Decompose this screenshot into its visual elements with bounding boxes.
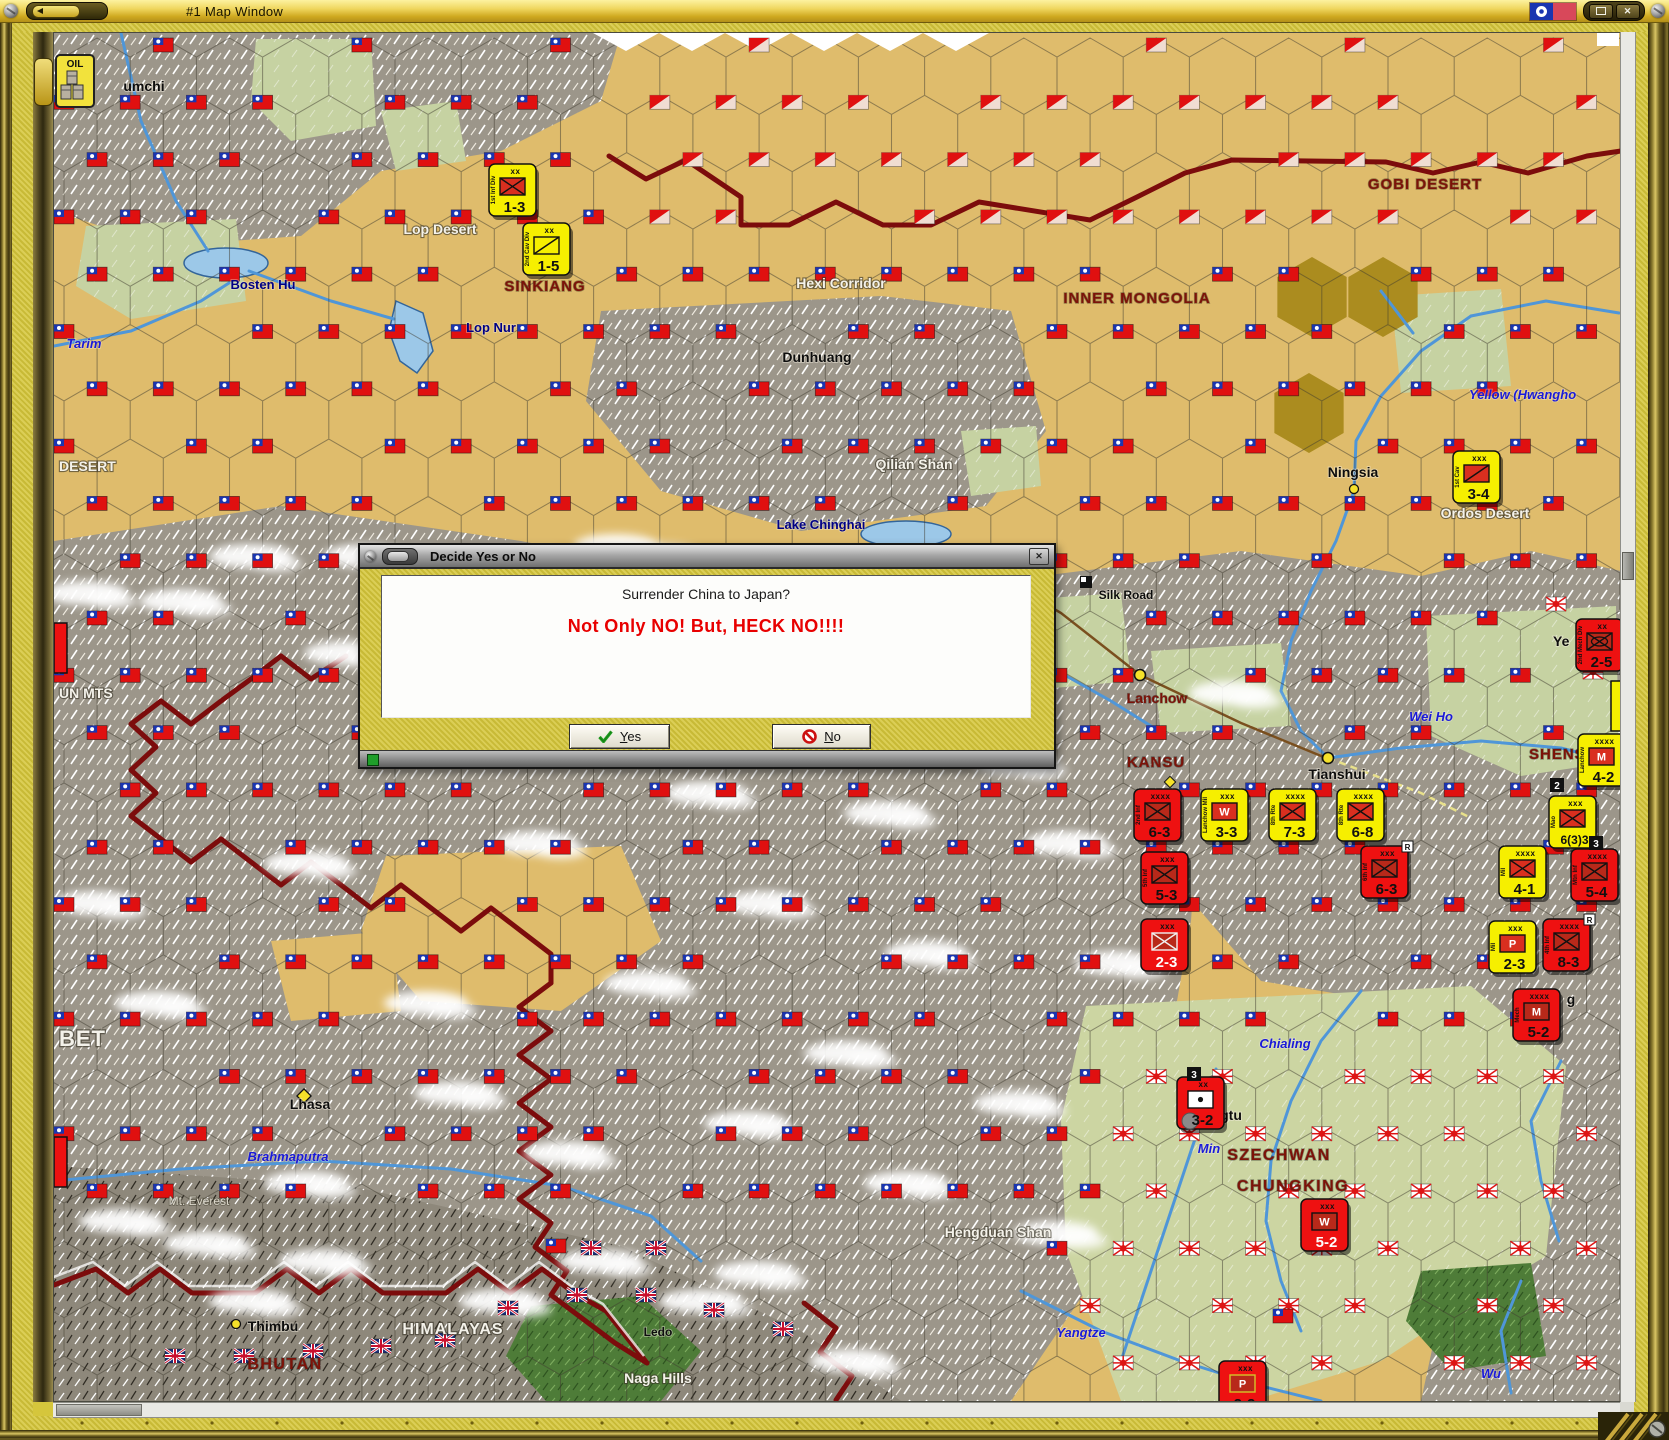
map-label: Lake Chinghai — [777, 517, 866, 532]
flag-roc-icon — [584, 783, 604, 797]
flag-roc-icon — [848, 1127, 868, 1141]
flag-roc-icon — [915, 325, 935, 339]
svg-text:2-3: 2-3 — [1504, 956, 1526, 973]
window-frame-left — [0, 22, 12, 1440]
unit-counter[interactable]: xxxxM4-2Lanchow — [1578, 734, 1621, 790]
flag-roc-icon — [882, 1184, 902, 1198]
flag-sun-icon — [1378, 1127, 1398, 1141]
flag-roc-icon — [220, 726, 240, 740]
map-label: SZECHWAN — [1227, 1147, 1331, 1164]
flag-roc-icon — [286, 611, 306, 625]
flag-roc-icon — [882, 1069, 902, 1083]
unit-counter[interactable]: xx1-31st Inf Div — [489, 164, 539, 220]
map-label: Ordos Desert — [1441, 505, 1530, 521]
svg-text:xxxx: xxxx — [1595, 737, 1615, 746]
unit-counter[interactable]: xxxx4-1Mil — [1499, 846, 1549, 902]
flag-roc-icon — [749, 840, 769, 854]
china-flag-icon — [1529, 2, 1577, 21]
flag-roc-icon — [716, 1012, 736, 1026]
flag-diag-icon — [948, 153, 968, 167]
flag-roc-icon — [915, 439, 935, 453]
flag-roc-icon — [584, 210, 604, 224]
svg-text:2nd Cav Div: 2nd Cav Div — [525, 231, 531, 266]
flag-roc-icon — [253, 95, 273, 109]
flag-roc-icon — [1510, 325, 1530, 339]
flag-roc-icon — [87, 382, 107, 396]
svg-text:8th Rte: 8th Rte — [1271, 804, 1277, 825]
svg-text:xxx: xxx — [1320, 1202, 1335, 1211]
flag-roc-icon — [186, 783, 206, 797]
flag-roc-icon — [1179, 1012, 1199, 1026]
flag-roc-icon — [153, 267, 173, 281]
flag-roc-icon — [385, 783, 405, 797]
svg-text:xxx: xxx — [1508, 924, 1523, 933]
map-label: Yangtze — [1056, 1325, 1105, 1340]
map-label: Lop Desert — [403, 221, 476, 237]
svg-text:xx: xx — [511, 167, 521, 176]
flag-roc-icon — [584, 898, 604, 912]
flag-roc-icon — [1113, 325, 1133, 339]
svg-text:Mil: Mil — [1501, 868, 1507, 877]
flag-roc-icon — [1047, 1127, 1067, 1141]
decision-dialog: Decide Yes or No ✕ Surrender China to Ja… — [358, 543, 1056, 769]
flag-roc-icon — [1345, 611, 1365, 625]
flag-roc-icon — [1213, 726, 1233, 740]
map-label: SHENS — [1529, 746, 1586, 763]
flag-roc-icon — [286, 955, 306, 969]
map-label: Thimbu — [248, 1318, 299, 1334]
map-label: SINKIANG — [504, 278, 585, 295]
flag-roc-icon — [451, 439, 471, 453]
flag-roc-icon — [1378, 668, 1398, 682]
flag-roc-icon — [1179, 554, 1199, 568]
flag-roc-icon — [186, 210, 206, 224]
flag-sun-icon — [1213, 1299, 1233, 1313]
flag-roc-icon — [87, 611, 107, 625]
flag-roc-icon — [551, 1184, 571, 1198]
unit-counter[interactable]: xxxx5-4Mtn Inf — [1571, 849, 1621, 905]
flag-roc-icon — [584, 1012, 604, 1026]
svg-text:xxx: xxx — [1160, 855, 1175, 864]
flag-roc-icon — [1246, 1012, 1266, 1026]
flag-sun-icon — [1411, 1069, 1431, 1083]
svg-text:R: R — [1587, 916, 1593, 925]
map-label: HIMALAYAS — [402, 1321, 503, 1338]
flag-roc-icon — [87, 726, 107, 740]
flag-roc-icon — [220, 955, 240, 969]
svg-text:M: M — [1597, 752, 1606, 764]
unit-counter[interactable]: xxxx6-32nd Inf — [1134, 789, 1184, 845]
dialog-titlebar[interactable]: Decide Yes or No ✕ — [360, 545, 1054, 569]
flag-roc-icon — [54, 898, 74, 912]
flag-roc-icon — [650, 325, 670, 339]
svg-text:xxx: xxx — [1472, 454, 1487, 463]
flag-roc-icon — [1146, 611, 1166, 625]
dialog-title: Decide Yes or No — [430, 549, 536, 564]
flag-roc-icon — [253, 783, 273, 797]
flag-diag-icon — [1544, 38, 1564, 52]
flag-roc-icon — [551, 496, 571, 510]
flag-roc-icon — [517, 1012, 537, 1026]
flag-roc-icon — [1477, 267, 1497, 281]
flag-roc-icon — [1444, 668, 1464, 682]
flag-diag-icon — [716, 210, 736, 224]
flag-diag-icon — [1279, 153, 1299, 167]
flag-sun-icon — [1345, 1069, 1365, 1083]
horizontal-scrollbar-thumb[interactable] — [56, 1404, 142, 1416]
map-label: BET — [59, 1026, 106, 1051]
flag-sun-icon — [1312, 1356, 1332, 1370]
flag-roc-icon — [1179, 783, 1199, 797]
flag-diag-icon — [1047, 210, 1067, 224]
offmap-edge — [1597, 33, 1619, 46]
flag-roc-icon — [749, 1184, 769, 1198]
flag-roc-icon — [782, 439, 802, 453]
svg-text:xxxx: xxxx — [1516, 849, 1536, 858]
flag-roc-icon — [517, 1127, 537, 1141]
flag-sun-icon — [1477, 1299, 1497, 1313]
vertical-scrollbar-thumb[interactable] — [1622, 552, 1634, 580]
flag-roc-icon — [1047, 1012, 1067, 1026]
flag-roc-icon — [1444, 898, 1464, 912]
status-green-square — [367, 754, 379, 766]
unit-counter[interactable]: xxxW5-2 — [1301, 1199, 1351, 1255]
svg-text:6th Inf: 6th Inf — [1363, 862, 1369, 881]
flag-roc-icon — [1146, 382, 1166, 396]
flag-roc-icon — [551, 382, 571, 396]
city-marker — [1323, 753, 1334, 764]
flag-diag-icon — [1378, 95, 1398, 109]
flag-roc-icon — [1477, 611, 1497, 625]
maximize-button[interactable] — [1589, 4, 1613, 19]
flag-diag-icon — [683, 153, 703, 167]
svg-text:1st Cav: 1st Cav — [1455, 466, 1461, 488]
flag-diag-icon — [1477, 153, 1497, 167]
unit-counter-partial[interactable] — [54, 623, 67, 673]
flag-roc-icon — [186, 439, 206, 453]
flag-roc-icon — [319, 210, 339, 224]
flag-roc-icon — [1411, 382, 1431, 396]
flag-roc-icon — [352, 955, 372, 969]
flag-diag-icon — [915, 210, 935, 224]
flag-roc-icon — [782, 1127, 802, 1141]
unit-counter[interactable]: xxxP2-2 — [1219, 1361, 1269, 1401]
flag-roc-icon — [1312, 325, 1332, 339]
map-label: Tarim — [67, 336, 102, 351]
svg-text:5th Inf: 5th Inf — [1143, 868, 1149, 887]
flag-diag-icon — [815, 153, 835, 167]
flag-roc-icon — [815, 1184, 835, 1198]
svg-text:6-8: 6-8 — [1352, 824, 1374, 841]
flag-roc-icon — [352, 38, 372, 52]
flag-roc-icon — [517, 325, 537, 339]
flag-sun-icon — [1113, 1127, 1133, 1141]
svg-text:5-2: 5-2 — [1528, 1024, 1550, 1041]
flag-uk-icon — [498, 1301, 518, 1315]
flag-roc-icon — [153, 611, 173, 625]
svg-text:xxx: xxx — [1568, 799, 1583, 808]
flag-roc-icon — [87, 153, 107, 167]
flag-roc-icon — [1113, 439, 1133, 453]
flag-roc-icon — [1279, 267, 1299, 281]
frame-inner-right — [1634, 32, 1648, 1430]
flag-roc-icon — [1213, 496, 1233, 510]
svg-text:3-3: 3-3 — [1216, 824, 1238, 841]
flag-diag-icon — [1510, 210, 1530, 224]
unit-counter[interactable]: xx1-52nd Cav Div — [523, 223, 573, 279]
map-label: Qilian Shan — [875, 456, 952, 472]
flag-roc-icon — [1047, 325, 1067, 339]
map-label: GOBI DESERT — [1368, 176, 1482, 193]
flag-roc-icon — [882, 382, 902, 396]
svg-text:xxxx: xxxx — [1588, 852, 1608, 861]
flag-roc-icon — [617, 382, 637, 396]
flag-roc-icon — [418, 153, 438, 167]
flag-roc-icon — [948, 496, 968, 510]
flag-roc-icon — [815, 1069, 835, 1083]
flag-roc-icon — [1080, 840, 1100, 854]
flag-roc-icon — [848, 783, 868, 797]
no-button[interactable]: No — [772, 724, 871, 749]
flag-diag-icon — [1113, 95, 1133, 109]
flag-roc-icon — [617, 1069, 637, 1083]
flag-diag-icon — [1378, 210, 1398, 224]
map-label: Brahmaputra — [248, 1149, 329, 1164]
flag-roc-icon — [716, 898, 736, 912]
flag-diag-icon — [1146, 38, 1166, 52]
flag-roc-icon — [1312, 898, 1332, 912]
flag-roc-icon — [1577, 439, 1597, 453]
flag-sun-icon — [1477, 1069, 1497, 1083]
unit-counter[interactable]: xxxx7-38th Rte — [1269, 789, 1319, 845]
flag-roc-icon — [848, 898, 868, 912]
flag-roc-icon — [1113, 668, 1133, 682]
flag-roc-icon — [153, 840, 173, 854]
flag-roc-icon — [1047, 783, 1067, 797]
flag-roc-icon — [153, 38, 173, 52]
svg-text:8th Rte: 8th Rte — [1339, 804, 1345, 825]
flag-roc-icon — [1213, 267, 1233, 281]
flag-roc-icon — [1411, 496, 1431, 510]
flag-sun-icon — [1345, 1299, 1365, 1313]
flag-sun-icon — [1477, 1184, 1497, 1198]
unit-counter[interactable]: xxx5-35th Inf — [1141, 852, 1191, 908]
window-menu-button[interactable] — [26, 2, 108, 20]
flag-roc-icon — [1014, 382, 1034, 396]
unit-counter[interactable]: xxx3-41st Cav — [1453, 451, 1503, 507]
map-label: Bosten Hu — [231, 277, 296, 292]
svg-text:xxx: xxx — [1160, 922, 1175, 931]
flag-roc-icon — [153, 153, 173, 167]
flag-roc-icon — [220, 382, 240, 396]
flag-roc-icon — [1444, 325, 1464, 339]
unit-counter[interactable]: xxxx6-88th Rte — [1337, 789, 1387, 845]
flag-roc-icon — [1444, 554, 1464, 568]
flag-roc-icon — [1378, 1012, 1398, 1026]
flag-roc-icon — [948, 840, 968, 854]
flag-roc-icon — [120, 668, 140, 682]
svg-text:P: P — [1239, 1379, 1246, 1391]
flag-roc-icon — [484, 840, 504, 854]
svg-text:5-4: 5-4 — [1586, 884, 1608, 901]
flag-diag-icon — [1047, 95, 1067, 109]
flag-sun-icon — [1113, 1241, 1133, 1255]
flag-roc-icon — [319, 554, 339, 568]
flag-diag-icon — [1345, 153, 1365, 167]
flag-sun-icon — [1146, 1184, 1166, 1198]
unit-counter[interactable]: xxxx8-34th InfR — [1543, 914, 1595, 975]
flag-roc-icon — [551, 1069, 571, 1083]
flag-sun-icon — [1577, 1241, 1597, 1255]
flag-roc-icon — [286, 496, 306, 510]
flag-roc-icon — [1014, 267, 1034, 281]
flag-roc-icon — [87, 267, 107, 281]
flag-diag-icon — [1179, 95, 1199, 109]
unit-counter[interactable]: xx2-52nd Mech Div — [1576, 619, 1621, 675]
map-label: Tianshui — [1308, 766, 1365, 782]
unit-counter[interactable]: xxxxM5-2Mech — [1513, 989, 1563, 1045]
flag-roc-icon — [584, 325, 604, 339]
flag-diag-icon — [749, 153, 769, 167]
unit-counter-partial[interactable] — [54, 1137, 67, 1187]
flag-roc-icon — [1378, 439, 1398, 453]
flag-roc-icon — [352, 496, 372, 510]
flag-roc-icon — [286, 840, 306, 854]
svg-text:P: P — [1509, 939, 1516, 951]
flag-roc-icon — [319, 1012, 339, 1026]
svg-text:7-3: 7-3 — [1284, 824, 1306, 841]
vertical-scrollbar[interactable] — [1620, 32, 1636, 1402]
flag-roc-icon — [915, 898, 935, 912]
flag-sun-icon — [1378, 1241, 1398, 1255]
flag-roc-icon — [385, 1127, 405, 1141]
svg-text:Mil: Mil — [1491, 943, 1497, 952]
map-label: UN MTS — [59, 685, 113, 701]
collapse-oval-icon — [32, 5, 80, 18]
flag-roc-icon — [120, 554, 140, 568]
flag-diag-icon — [1113, 210, 1133, 224]
flag-uk-icon — [704, 1303, 724, 1317]
dialog-close-button[interactable]: ✕ — [1029, 548, 1049, 565]
flag-roc-icon — [948, 267, 968, 281]
screw-icon — [365, 551, 376, 562]
flag-roc-icon — [120, 1127, 140, 1141]
svg-text:xxx: xxx — [1220, 792, 1235, 801]
frame-inner-left — [12, 32, 33, 1430]
svg-text:1-5: 1-5 — [538, 258, 560, 275]
svg-text:1st Inf Div: 1st Inf Div — [491, 175, 497, 204]
flag-diag-icon — [1080, 153, 1100, 167]
flag-roc-icon — [1411, 955, 1431, 969]
flag-roc-icon — [1279, 496, 1299, 510]
flag-roc-icon — [385, 210, 405, 224]
flag-roc-icon — [385, 439, 405, 453]
flag-roc-icon — [1246, 668, 1266, 682]
flag-sun-icon — [1444, 1127, 1464, 1141]
flag-roc-icon — [1510, 783, 1530, 797]
map-label: Lop Nur — [466, 320, 516, 335]
flag-roc-icon — [186, 1127, 206, 1141]
flag-roc-icon — [319, 668, 339, 682]
flag-roc-icon — [650, 439, 670, 453]
left-rail-knob[interactable] — [34, 58, 53, 106]
window-title: #1 Map Window — [186, 4, 283, 19]
flag-diag-icon — [1544, 153, 1564, 167]
svg-text:xx: xx — [1598, 622, 1608, 631]
flag-diag-icon — [1577, 95, 1597, 109]
flag-roc-icon — [915, 1012, 935, 1026]
dialog-menu-button[interactable] — [382, 548, 418, 565]
flag-roc-icon — [1544, 726, 1564, 740]
flag-uk-icon — [646, 1241, 666, 1255]
unit-counter[interactable]: xx3-2 — [1177, 1077, 1227, 1133]
close-button[interactable]: ✕ — [1616, 4, 1640, 19]
map-label: Dunhuang — [782, 349, 851, 365]
flag-roc-icon — [1273, 1309, 1293, 1323]
flag-roc-icon — [517, 95, 537, 109]
application-window: OIL umchiLop DesertBosten HuTarimLop Nur… — [0, 0, 1669, 1440]
flag-roc-icon — [683, 840, 703, 854]
map-label: Hexi Corridor — [796, 275, 886, 291]
flag-roc-icon — [418, 955, 438, 969]
flag-roc-icon — [1213, 955, 1233, 969]
flag-roc-icon — [186, 668, 206, 682]
flag-roc-icon — [1113, 1012, 1133, 1026]
flag-diag-icon — [981, 95, 1001, 109]
flag-diag-icon — [749, 38, 769, 52]
flag-roc-icon — [418, 840, 438, 854]
svg-text:2: 2 — [1554, 781, 1560, 792]
svg-text:2-3: 2-3 — [1156, 954, 1178, 971]
flag-roc-icon — [286, 1184, 306, 1198]
flag-sun-icon — [1544, 1184, 1564, 1198]
flag-diag-icon — [1577, 210, 1597, 224]
svg-text:8-3: 8-3 — [1558, 954, 1580, 971]
flag-roc-icon — [54, 439, 74, 453]
svg-text:Mao: Mao — [1551, 816, 1557, 828]
collapse-oval-icon — [387, 551, 409, 562]
flag-roc-icon — [1146, 496, 1166, 510]
map-label: Ningsia — [1328, 464, 1379, 480]
svg-text:xxxx: xxxx — [1286, 792, 1306, 801]
unit-counter[interactable]: xxxW3-3Lanchow Mil — [1201, 789, 1251, 845]
flag-roc-icon — [948, 1069, 968, 1083]
unit-counter[interactable]: xxxP2-3Mil — [1489, 921, 1539, 977]
flag-roc-icon — [683, 267, 703, 281]
map-label: Min — [1198, 1141, 1220, 1156]
flag-roc-icon — [981, 783, 1001, 797]
flag-roc-icon — [153, 726, 173, 740]
city-marker — [1350, 485, 1359, 494]
flag-roc-icon — [882, 955, 902, 969]
window-titlebar[interactable]: #1 Map Window ✕ — [0, 0, 1669, 23]
flag-roc-icon — [815, 496, 835, 510]
flag-roc-icon — [1146, 726, 1166, 740]
unit-counter[interactable]: xxx6-36th InfR — [1361, 841, 1413, 902]
unit-counter[interactable]: xxx2-3 — [1141, 919, 1191, 975]
yes-button[interactable]: Yes — [569, 724, 670, 749]
map-label: Lanchow — [1127, 690, 1188, 706]
flag-roc-icon — [484, 1069, 504, 1083]
flag-sun-icon — [1246, 1127, 1266, 1141]
left-rail — [33, 32, 53, 1402]
flag-roc-icon — [153, 496, 173, 510]
svg-text:3-2: 3-2 — [1192, 1112, 1214, 1129]
svg-text:5-2: 5-2 — [1316, 1234, 1338, 1251]
flag-roc-icon — [1213, 382, 1233, 396]
flag-roc-icon — [981, 898, 1001, 912]
svg-text:Mtn Inf: Mtn Inf — [1573, 864, 1579, 885]
